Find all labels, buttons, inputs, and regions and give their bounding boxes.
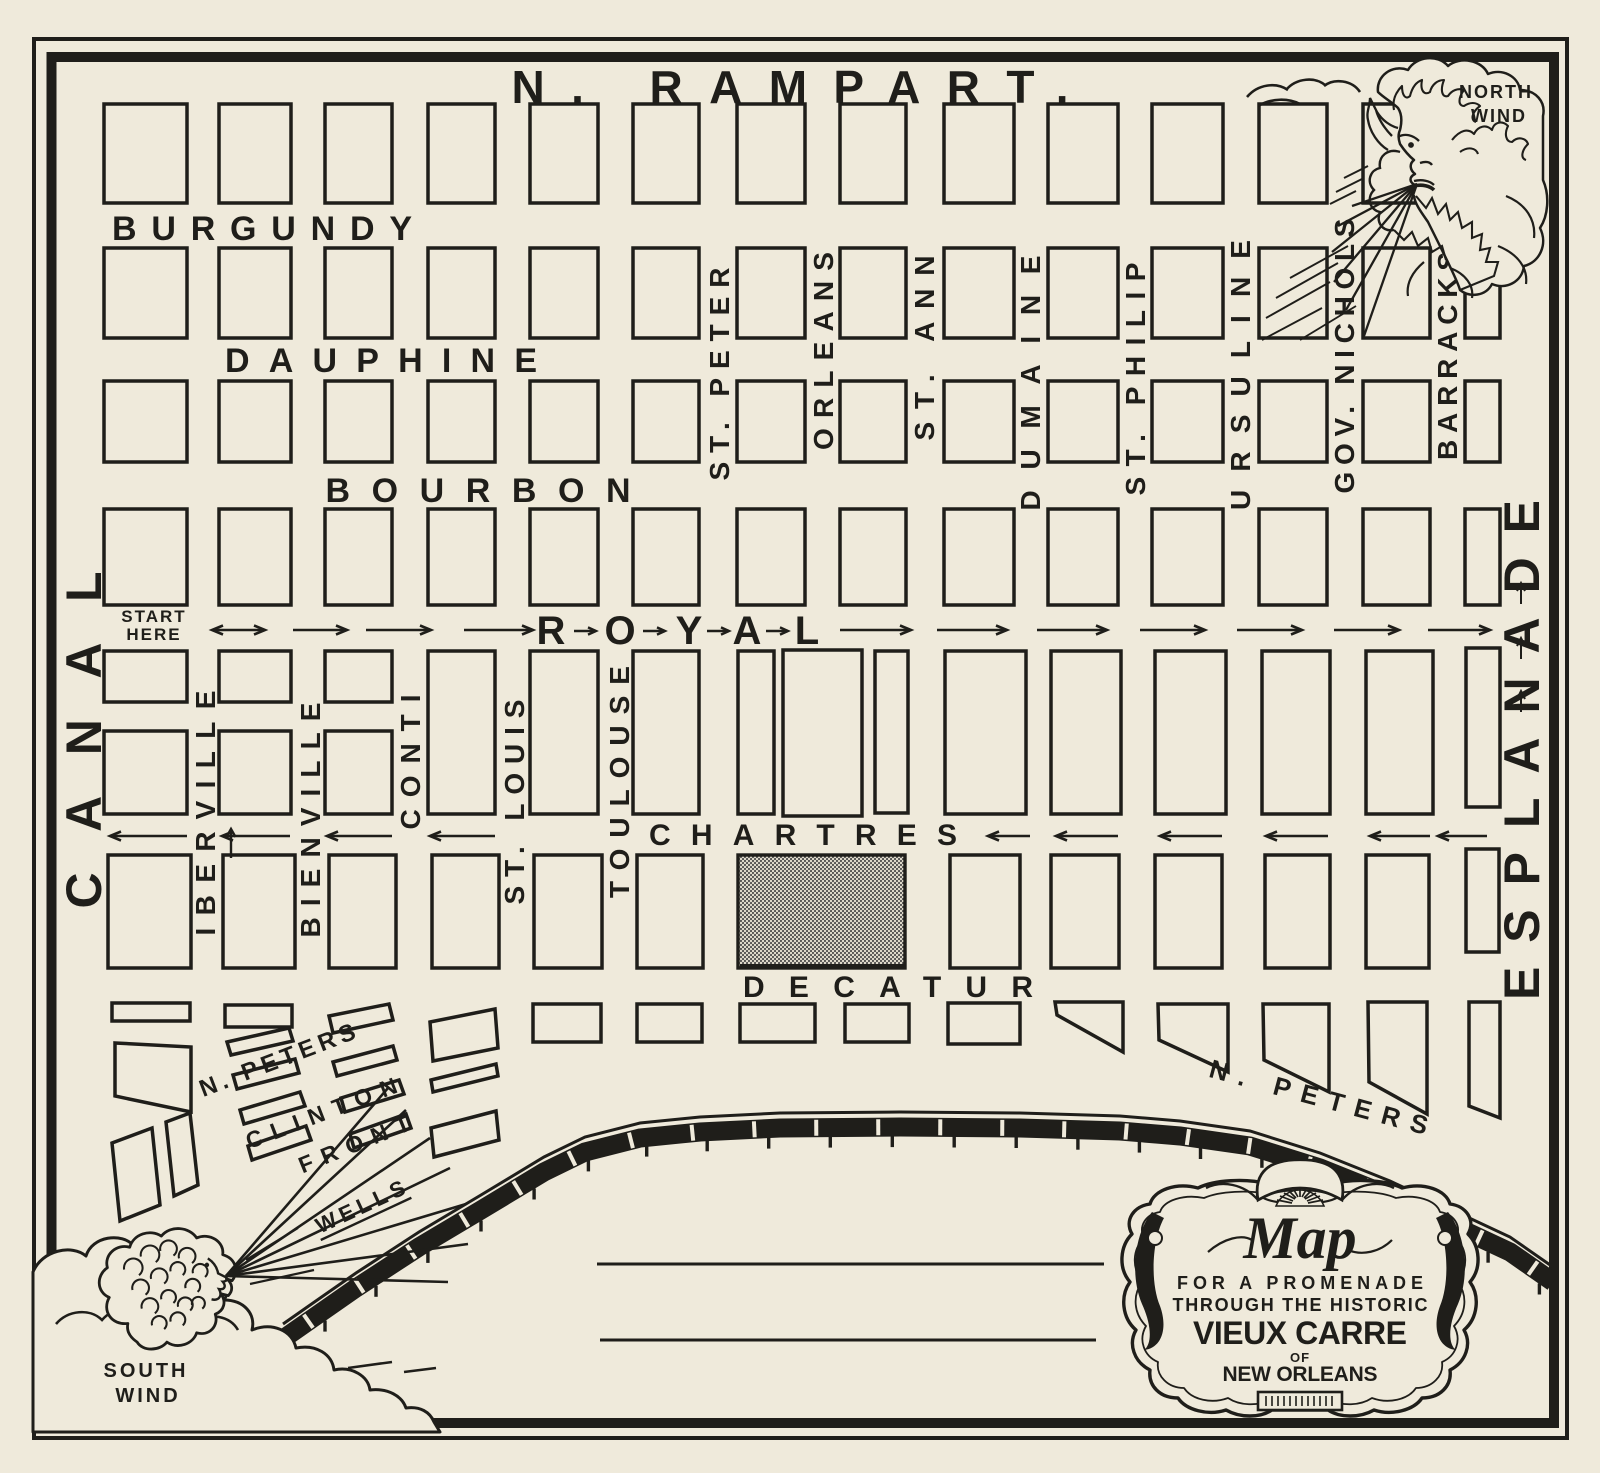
svg-text:START: START [121, 607, 186, 626]
svg-text:WIND: WIND [115, 1385, 180, 1407]
svg-text:ESPLANADE: ESPLANADE [1494, 500, 1550, 1000]
svg-text:HERE: HERE [126, 625, 181, 644]
svg-text:BIENVILLE: BIENVILLE [295, 703, 326, 938]
svg-text:NEW ORLEANS: NEW ORLEANS [1223, 1363, 1378, 1386]
svg-text:A: A [733, 609, 762, 653]
svg-text:GOV. NICHOLS: GOV. NICHOLS [1329, 219, 1360, 494]
svg-text:L: L [795, 609, 819, 653]
svg-text:VIEUX CARRE: VIEUX CARRE [1193, 1315, 1407, 1351]
svg-text:R: R [537, 609, 566, 653]
svg-text:THROUGH THE HISTORIC: THROUGH THE HISTORIC [1173, 1295, 1428, 1315]
svg-text:NORTH: NORTH [1459, 82, 1533, 102]
svg-text:SOUTH: SOUTH [104, 1360, 189, 1382]
svg-text:IBERVILLE: IBERVILLE [190, 691, 221, 936]
svg-text:O: O [604, 609, 635, 653]
svg-text:Map: Map [1242, 1205, 1356, 1271]
svg-text:Y: Y [676, 609, 703, 653]
svg-text:WIND: WIND [1471, 106, 1527, 126]
